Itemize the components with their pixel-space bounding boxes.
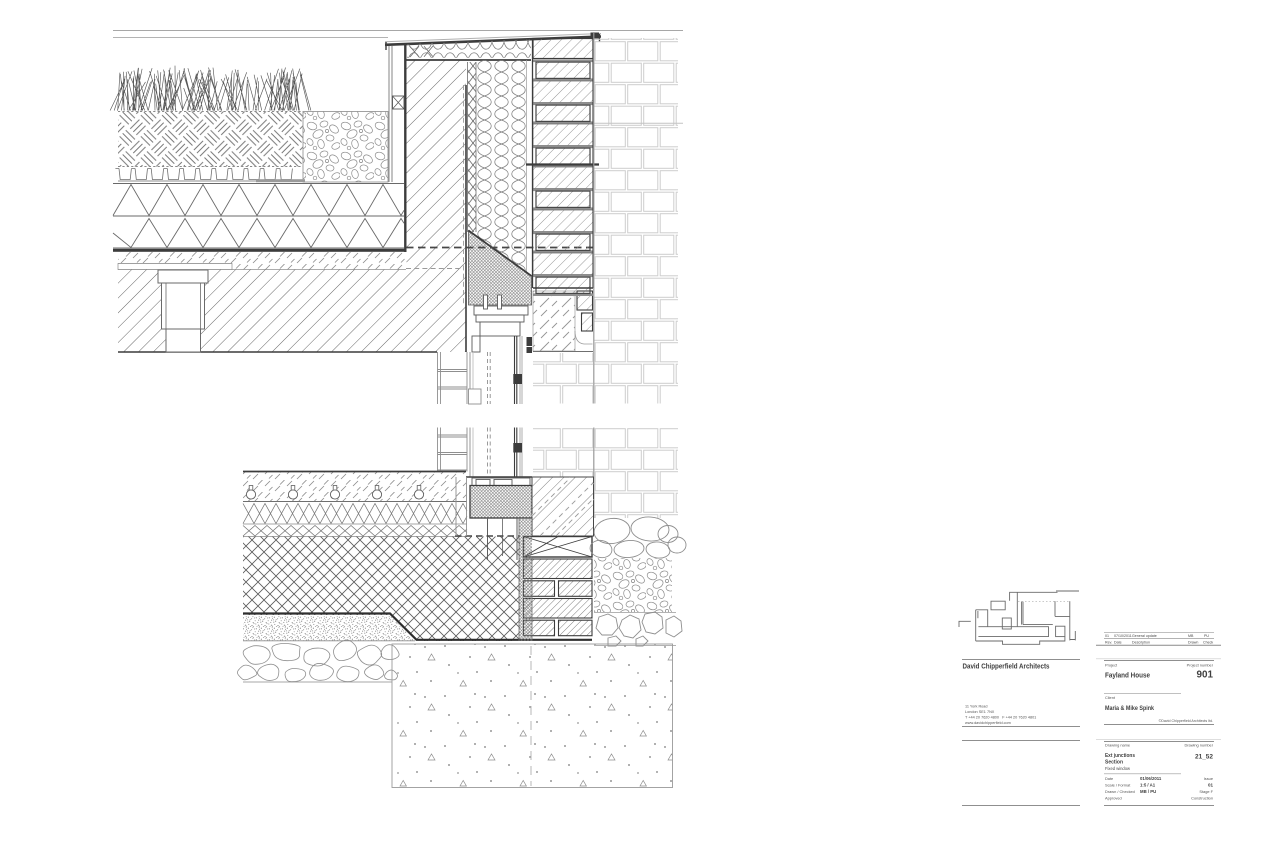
svg-text:1:5 / A1: 1:5 / A1 — [1140, 783, 1156, 788]
svg-text:01: 01 — [1208, 783, 1214, 788]
svg-text:Issue: Issue — [1204, 776, 1213, 781]
svg-text:MB: MB — [1188, 634, 1194, 638]
svg-text:Date: Date — [1105, 776, 1113, 781]
svg-text:11 York Road: 11 York Road — [965, 705, 988, 709]
svg-text:Fixed window: Fixed window — [1105, 766, 1131, 771]
svg-text:Client: Client — [1105, 695, 1116, 700]
svg-text:Construction: Construction — [1191, 796, 1213, 801]
svg-text:Project: Project — [1105, 662, 1118, 667]
svg-text:General update: General update — [1132, 634, 1157, 638]
svg-text:Scale / Format: Scale / Format — [1105, 783, 1131, 788]
svg-text:Ext junctions: Ext junctions — [1105, 753, 1135, 759]
svg-text:Stage F: Stage F — [1199, 789, 1213, 794]
svg-text:David Chipperfield Architects: David Chipperfield Architects — [963, 662, 1050, 671]
svg-text:Drawn / Checked: Drawn / Checked — [1105, 789, 1135, 794]
svg-text:Drawing name: Drawing name — [1105, 743, 1130, 748]
svg-text:Drawing number: Drawing number — [1184, 743, 1213, 748]
svg-text:21_52: 21_52 — [1195, 754, 1213, 761]
svg-text:Drawn: Drawn — [1188, 640, 1198, 644]
svg-text:901: 901 — [1197, 669, 1214, 681]
svg-text:www.davidchipperfield.com: www.davidchipperfield.com — [965, 721, 1011, 725]
svg-text:01/06/2011: 01/06/2011 — [1140, 776, 1162, 781]
svg-text:Rev.: Rev. — [1105, 640, 1112, 644]
svg-text:Section: Section — [1105, 760, 1123, 766]
svg-text:MB / PU: MB / PU — [1140, 789, 1156, 794]
svg-text:London SE1 7NX: London SE1 7NX — [965, 710, 995, 714]
svg-text:PU: PU — [1204, 634, 1209, 638]
svg-text:Approved: Approved — [1105, 796, 1122, 801]
svg-text:Date: Date — [1114, 640, 1122, 644]
svg-text:Fayland House: Fayland House — [1105, 671, 1150, 680]
svg-text:07/10/2011: 07/10/2011 — [1114, 634, 1132, 638]
svg-text:01: 01 — [1105, 634, 1109, 638]
svg-text:Description: Description — [1132, 640, 1150, 644]
svg-text:©David Chipperfield Architects: ©David Chipperfield Architects ltd. — [1159, 719, 1213, 723]
svg-text:Project number: Project number — [1187, 662, 1214, 667]
svg-text:T +44 20 7620 4800 F +44 20: T +44 20 7620 4800 F +44 20 7620 4801 — [965, 716, 1036, 720]
svg-text:Check: Check — [1203, 640, 1213, 644]
svg-text:Maria & Mike Spink: Maria & Mike Spink — [1105, 705, 1154, 712]
